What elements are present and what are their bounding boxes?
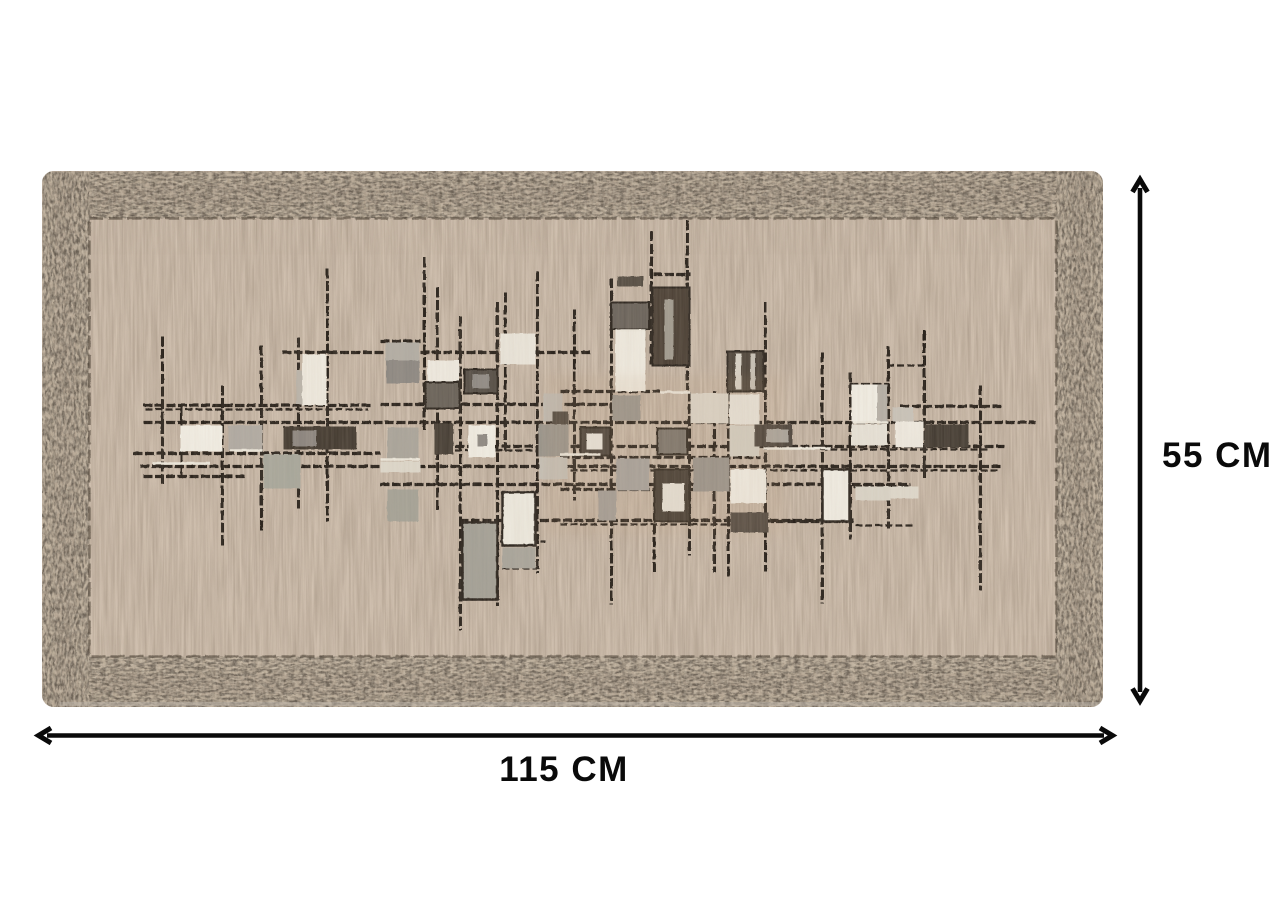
svg-text:55 CM: 55 CM [1162, 436, 1273, 475]
svg-text:115 CM: 115 CM [499, 750, 629, 789]
